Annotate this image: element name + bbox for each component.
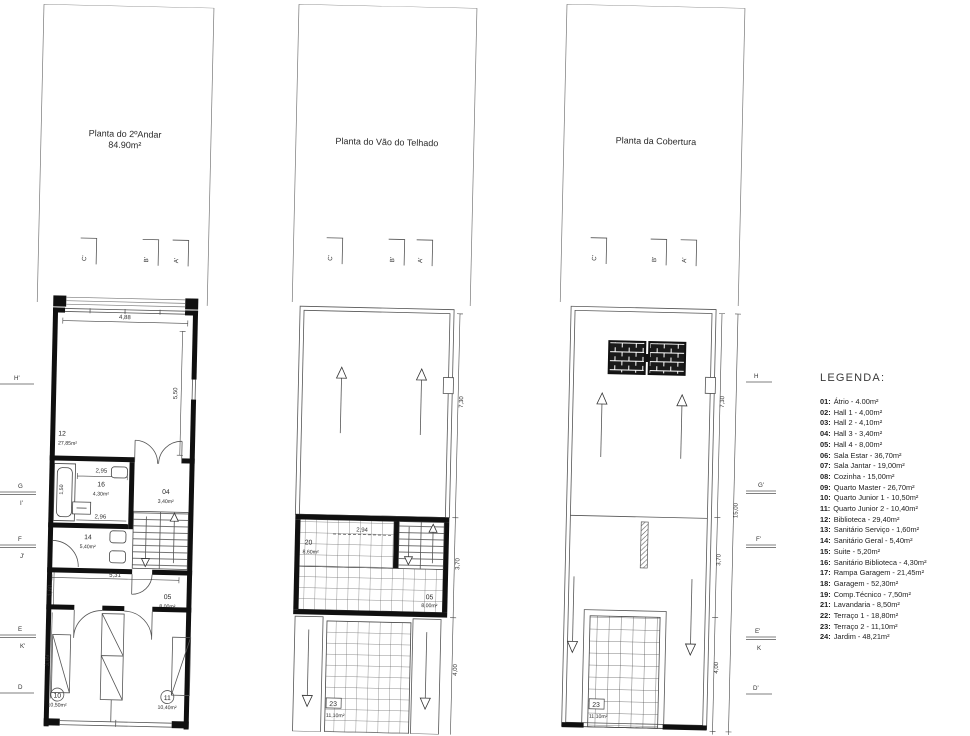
plan-title-text: Planta da Cobertura <box>616 135 697 147</box>
down-arrow <box>685 644 695 655</box>
tiled-band: 2,94 20 8,60m² 05 8,00m² 3,70 <box>293 514 462 618</box>
section-marker-c: C' <box>591 255 598 261</box>
balcony-strip <box>53 295 198 309</box>
legend-item: 22:Terraço 1 - 18,80m² <box>820 611 970 622</box>
section-marker-b: B' <box>389 257 396 262</box>
up-arrow <box>677 395 687 406</box>
plan-title-text: Planta do 2ºAndar <box>89 128 162 140</box>
dim-295: 2,95 <box>95 468 107 474</box>
room-num-23: 23 <box>329 701 337 708</box>
room-hall3: 04 3,40m² <box>158 489 175 505</box>
room-area-04: 3,40m² <box>158 499 175 505</box>
legend-item-text: Sanitário Serviço - 1,60m² <box>834 525 919 534</box>
room-num-23: 23 <box>592 702 600 709</box>
terrace-section: 23 11,10m² 4,00 <box>293 614 461 735</box>
roof-void-outline <box>295 306 455 517</box>
room-area-12: 27,85m² <box>58 441 77 447</box>
legend-item-text: Rampa Garagem - 21,45m² <box>834 568 924 577</box>
dim-height: 5,50 <box>173 387 179 399</box>
section-marker-b: B' <box>143 257 150 262</box>
legend-item: 11:Quarto Junior 2 - 10,40m² <box>820 504 970 515</box>
legend-item-num: 19: <box>820 590 831 599</box>
up-arrow <box>417 369 427 380</box>
legend-item-text: Hall 3 - 3,40m² <box>834 429 882 438</box>
central-wardrobe <box>100 614 124 722</box>
room-biblioteca: 4,88 5,50 12 27,85m² <box>58 314 188 456</box>
legend-item-text: Átrio - 4.00m² <box>834 397 879 406</box>
marker-e: E <box>18 626 22 633</box>
bedrooms: 3,89 10 10,50m² 11 10,40m² <box>44 604 192 723</box>
legend-item: 03:Hall 2 - 4,10m² <box>820 418 970 429</box>
room-area-10: 10,50m² <box>48 702 67 708</box>
section-marker-a: A' <box>417 258 424 263</box>
door-arc-right <box>124 611 153 640</box>
section-markers: C' B' A' <box>80 238 189 266</box>
marker-d: D' <box>753 685 759 692</box>
legend-title: LEGENDA: <box>820 372 970 384</box>
room-area-11: 10,40m² <box>157 705 176 711</box>
skylight-panel <box>649 342 686 375</box>
legend-item-text: Quarto Junior 2 - 10,40m² <box>833 504 918 513</box>
plan-roof-void: Planta do Vão do Telhado C' B' A' 7,30 <box>279 4 490 735</box>
legend-item-num: 02: <box>820 408 831 417</box>
toilet <box>110 531 126 543</box>
dim-531: 5,31 <box>109 573 121 579</box>
marker-e: E' <box>755 628 760 635</box>
legend-item-text: Quarto Master - 26,70m² <box>834 483 915 492</box>
dim-370: 3,70 <box>716 553 722 565</box>
legend-item-num: 07: <box>820 461 831 470</box>
room-num-16: 16 <box>97 481 105 488</box>
wardrobe-left <box>51 634 70 692</box>
legend-item-text: Terraço 1 - 18,80m² <box>834 611 899 620</box>
marker-h: H' <box>14 375 20 382</box>
legend-item-text: Terraço 2 - 11,10m² <box>834 622 898 631</box>
door-arc-left <box>74 610 103 639</box>
dim-1500: 15,00 <box>733 502 739 518</box>
legend-item-num: 06: <box>820 451 831 460</box>
legend-item-num: 18: <box>820 579 831 588</box>
room-area-20: 8,60m² <box>302 549 319 555</box>
legend-item-num: 21: <box>820 600 831 609</box>
plan-roof: Planta da Cobertura C' B' A' 23 11,10m² <box>547 4 773 736</box>
section-marker-c: C' <box>327 255 334 261</box>
plan-title: Planta do 2ºAndar 84.90m² <box>88 128 161 151</box>
dim-tub: 1,50 <box>59 484 65 494</box>
legend-item-text: Biblioteca - 29,40m² <box>834 515 900 524</box>
legend-item: 15:Suite - 5,20m² <box>820 547 970 558</box>
section-marker-a: A' <box>681 257 688 262</box>
legend-item: 12:Biblioteca - 29,40m² <box>820 515 970 526</box>
stairs <box>398 521 444 569</box>
legend-item-text: Quarto Junior 1 - 10,50m² <box>834 493 919 502</box>
legend-item: 24:Jardim - 48,21m² <box>820 632 970 643</box>
legend-item: 23:Terraço 2 - 11,10m² <box>820 622 970 633</box>
slope-arrows-up <box>335 367 426 435</box>
room-num-20: 20 <box>305 539 313 546</box>
section-marker-b: B' <box>651 257 658 262</box>
legend-item: 06:Sala Estar - 36,70m² <box>820 451 970 462</box>
legend-item: 17:Rampa Garagem - 21,45m² <box>820 568 970 579</box>
legend-item: 09:Quarto Master - 26,70m² <box>820 483 970 494</box>
skylight-panel <box>609 341 646 374</box>
room-num-14: 14 <box>84 534 92 541</box>
legend-item-text: Sanitário Biblioteca - 4,30m² <box>834 558 927 567</box>
down-arrow <box>420 698 430 709</box>
plan-area-text: 84.90m² <box>108 140 141 151</box>
legend-item: 08:Cozinha - 15,00m² <box>820 472 970 483</box>
bidet <box>109 551 125 563</box>
site-outline <box>292 4 477 306</box>
marker-i: I' <box>20 500 23 507</box>
room-area-16: 4,30m² <box>93 491 110 497</box>
legend-item: 14:Sanitário Geral - 5,40m² <box>820 536 970 547</box>
chimney <box>640 522 648 568</box>
up-arrow <box>597 393 607 404</box>
legend-items: 01:Átrio - 4.00m² 02:Hall 1 - 4,00m² 03:… <box>820 397 970 643</box>
room-area-05: 8,00m² <box>421 603 438 609</box>
legend-item-text: Comp.Técnico - 7,50m² <box>834 590 911 599</box>
legend-item-num: 03: <box>820 418 831 427</box>
legend-item-text: Sala Estar - 36,70m² <box>834 451 902 460</box>
section-markers: C' B' A' <box>590 238 697 266</box>
marker-g: G <box>18 483 23 490</box>
dim-160: 1,60 <box>48 584 54 596</box>
legend-item-num: 10: <box>820 493 831 502</box>
legend-item: 10:Quarto Junior 1 - 10,50m² <box>820 493 970 504</box>
room-num-05: 05 <box>426 594 434 601</box>
room-num-04: 04 <box>162 489 170 496</box>
up-arrow <box>337 367 347 378</box>
marker-f: F <box>18 536 22 543</box>
marker-f: F' <box>756 536 761 543</box>
legend-item-text: Lavandaria - 8,50m² <box>834 600 900 609</box>
room-area-14: 5,40m² <box>80 544 97 550</box>
dim-730: 7,30 <box>459 395 465 407</box>
room-num-11: 11 <box>164 695 171 702</box>
room-hall4: 5,31 05 8,00m² 1,60 <box>46 567 192 610</box>
section-marker-a: A' <box>173 258 180 263</box>
dim-400: 4,00 <box>453 663 459 675</box>
legend-item-num: 22: <box>820 611 831 620</box>
legend-item-num: 01: <box>820 397 831 406</box>
room-area-23: 11,10m² <box>326 713 345 719</box>
legend-item-num: 17: <box>820 568 831 577</box>
right-section-markers: H G' F' E' K D' <box>746 360 806 705</box>
legend-item-num: 13: <box>820 525 831 534</box>
section-marker-c: C' <box>81 255 88 261</box>
legend-item: 18:Garagem - 52,30m² <box>820 579 970 590</box>
legend-item-text: Cozinha - 15,00m² <box>834 472 895 481</box>
room-num-12: 12 <box>58 431 66 438</box>
legend-item-text: Sala Jantar - 19,00m² <box>834 461 905 470</box>
legend-item-num: 04: <box>820 429 831 438</box>
dim-389: 3,89 <box>45 654 51 666</box>
legend-item: 07:Sala Jantar - 19,00m² <box>820 461 970 472</box>
skylight-panels <box>609 341 686 375</box>
room-sanitario-geral: 2,96 14 5,40m² <box>47 513 128 568</box>
dim-400: 4,00 <box>714 661 720 673</box>
legend-item-num: 05: <box>820 440 831 449</box>
down-arrow <box>302 695 312 706</box>
marker-d: D <box>18 684 23 691</box>
legend-item-text: Garagem - 52,30m² <box>834 579 899 588</box>
legend: LEGENDA: 01:Átrio - 4.00m² 02:Hall 1 - 4… <box>820 372 970 643</box>
dim-730: 7,30 <box>720 395 726 407</box>
legend-item-num: 11: <box>820 504 830 513</box>
legend-item-num: 15: <box>820 547 831 556</box>
legend-item-num: 16: <box>820 558 831 567</box>
dim-width: 4,88 <box>119 315 131 321</box>
legend-item-num: 14: <box>820 536 831 545</box>
plan-title-text: Planta do Vão do Telhado <box>335 136 438 148</box>
toilet <box>111 467 127 478</box>
room-area-23: 11,10m² <box>589 714 608 720</box>
room-num-10: 10 <box>53 692 61 699</box>
dim-294: 2,94 <box>356 528 368 534</box>
marker-j: J' <box>20 553 24 560</box>
dim-370: 3,70 <box>455 557 461 569</box>
legend-item-text: Sanitário Geral - 5,40m² <box>834 536 913 545</box>
legend-item-num: 23: <box>820 622 831 631</box>
section-markers: C' B' A' <box>326 238 433 266</box>
legend-item: 01:Átrio - 4.00m² <box>820 397 970 408</box>
legend-item: 02:Hall 1 - 4,00m² <box>820 408 970 419</box>
legend-item: 16:Sanitário Biblioteca - 4,30m² <box>820 558 970 569</box>
legend-item: 04:Hall 3 - 3,40m² <box>820 429 970 440</box>
site-outline <box>37 4 214 306</box>
legend-item: 21:Lavandaria - 8,50m² <box>820 600 970 611</box>
marker-g: G' <box>758 482 764 489</box>
legend-item-num: 12: <box>820 515 831 524</box>
plan-second-floor: Planta do 2ºAndar 84.90m² C' B' A' 4,88 … <box>24 4 235 735</box>
room-num-05: 05 <box>164 594 172 601</box>
legend-item-text: Hall 4 - 8,00m² <box>834 440 882 449</box>
door-arc <box>132 574 152 594</box>
shower-door-arc <box>52 540 79 567</box>
legend-item-text: Hall 2 - 4,10m² <box>834 418 882 427</box>
legend-item-num: 09: <box>820 483 831 492</box>
legend-item: 05:Hall 4 - 8,00m² <box>820 440 970 451</box>
down-arrow <box>567 641 577 652</box>
legend-item: 19:Comp.Técnico - 7,50m² <box>820 590 970 601</box>
legend-item-num: 08: <box>820 472 831 481</box>
marker-h: H <box>754 373 758 380</box>
legend-item-text: Jardim - 48,21m² <box>834 632 890 641</box>
legend-item-num: 24: <box>820 632 831 641</box>
marker-k: K <box>757 645 762 652</box>
left-section-markers: H' G I' F J' E K' D <box>0 360 40 705</box>
terrace-23: 23 11,10m² <box>582 610 667 729</box>
roof-break-line <box>570 515 707 518</box>
legend-item: 13:Sanitário Serviço - 1,60m² <box>820 525 970 536</box>
slope-arrows-up <box>596 393 687 459</box>
legend-item-text: Suite - 5,20m² <box>834 547 880 556</box>
stairs <box>132 511 188 569</box>
legend-item-text: Hall 1 - 4,00m² <box>834 408 882 417</box>
dim-296: 2,96 <box>94 514 106 520</box>
marker-k: K' <box>20 643 25 650</box>
